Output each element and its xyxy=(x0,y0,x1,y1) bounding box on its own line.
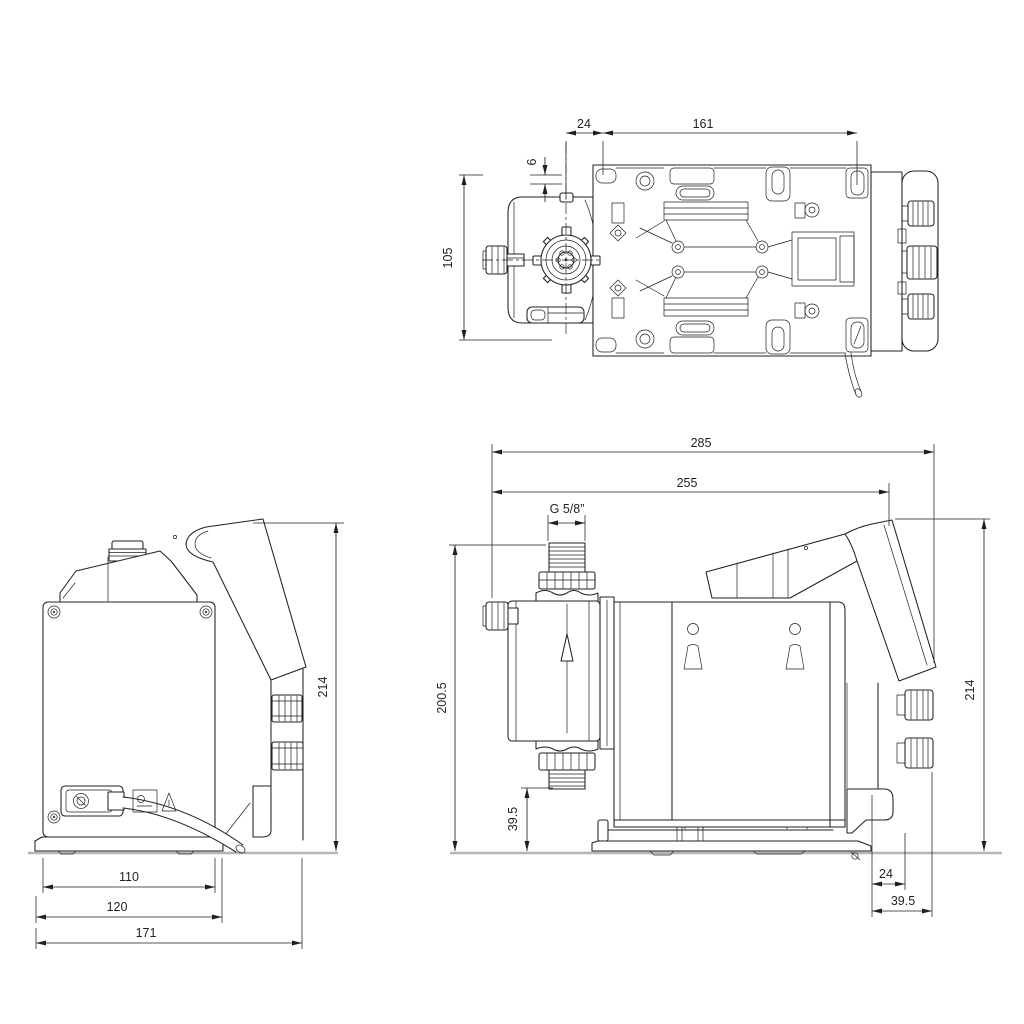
dim-label-285: 285 xyxy=(691,436,712,450)
pump-back-drawing xyxy=(35,519,306,855)
side-view: 285 255 G 5/8” 200.5 39.5 214 24 39.5 xyxy=(435,436,990,917)
cable-connectors-back xyxy=(272,695,303,770)
cable-gland xyxy=(61,786,124,816)
dim-label-214-side: 214 xyxy=(963,680,977,701)
dim-label-161: 161 xyxy=(693,117,714,131)
dim-label-39-5-side: 39.5 xyxy=(891,894,915,908)
dim-label-thread: G 5/8” xyxy=(550,502,585,516)
drawing-page: 24 161 6 105 xyxy=(0,0,1024,1024)
dim-label-255: 255 xyxy=(677,476,698,490)
dim-label-105: 105 xyxy=(441,248,455,269)
dim-label-214-back: 214 xyxy=(316,677,330,698)
dim-label-24-side: 24 xyxy=(879,867,893,881)
dosing-pump-dimensional-drawing: 24 161 6 105 xyxy=(0,0,1024,1024)
dosing-head-side xyxy=(483,543,614,789)
top-view: 24 161 6 105 xyxy=(441,117,938,398)
dim-label-6: 6 xyxy=(525,158,539,165)
wall-bracket-side xyxy=(847,789,893,833)
cable-connectors-side xyxy=(847,683,933,788)
dim-label-110: 110 xyxy=(119,870,139,884)
pump-top-drawing xyxy=(482,143,938,398)
dim-label-120: 120 xyxy=(107,900,128,914)
pump-side-drawing xyxy=(483,520,936,860)
back-view: 214 110 120 171 xyxy=(35,519,344,949)
dim-label-24-top: 24 xyxy=(577,117,591,131)
dim-label-39-5-valve: 39.5 xyxy=(506,807,520,831)
dim-label-200-5: 200.5 xyxy=(435,682,449,713)
dim-label-171: 171 xyxy=(136,926,157,940)
